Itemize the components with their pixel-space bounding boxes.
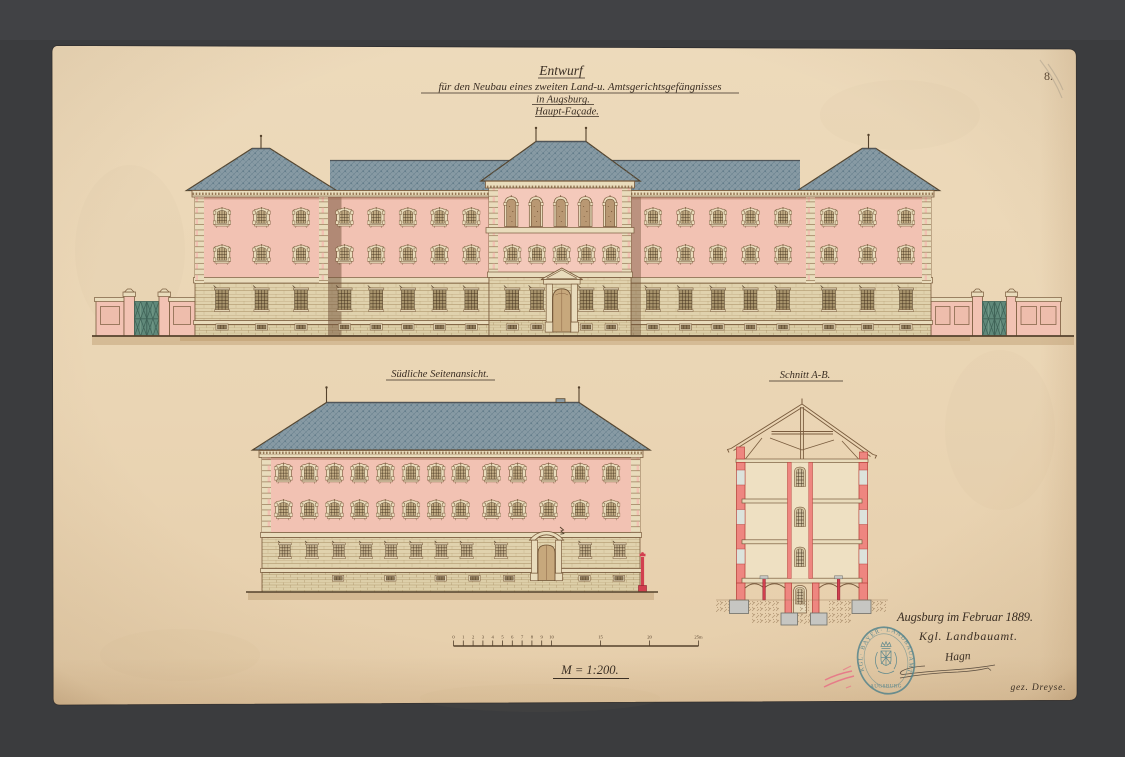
svg-text:Kgl. Landbauamt.: Kgl. Landbauamt. [918, 629, 1017, 643]
svg-text:10: 10 [549, 635, 554, 640]
svg-text:M = 1:200.: M = 1:200. [560, 663, 618, 677]
svg-text:Entwurf: Entwurf [538, 63, 585, 78]
svg-text:für den Neubau eines zweiten L: für den Neubau eines zweiten Land-u. Amt… [438, 81, 721, 93]
svg-text:20: 20 [647, 635, 652, 640]
svg-text:Hagn: Hagn [944, 650, 972, 664]
svg-text:gez. Dreyse.: gez. Dreyse. [1011, 683, 1066, 693]
svg-text:in Augsburg.: in Augsburg. [536, 95, 590, 106]
svg-text:25m: 25m [694, 635, 703, 640]
svg-text:15: 15 [598, 635, 603, 640]
svg-text:Südliche Seitenansicht.: Südliche Seitenansicht. [391, 369, 488, 380]
svg-text:Augsburg im Februar 1889.: Augsburg im Februar 1889. [896, 610, 1033, 624]
svg-text:AUGSBURG: AUGSBURG [870, 684, 902, 690]
svg-text:Haupt-Façade.: Haupt-Façade. [534, 107, 599, 118]
svg-text:Schnitt A-B.: Schnitt A-B. [780, 370, 831, 381]
